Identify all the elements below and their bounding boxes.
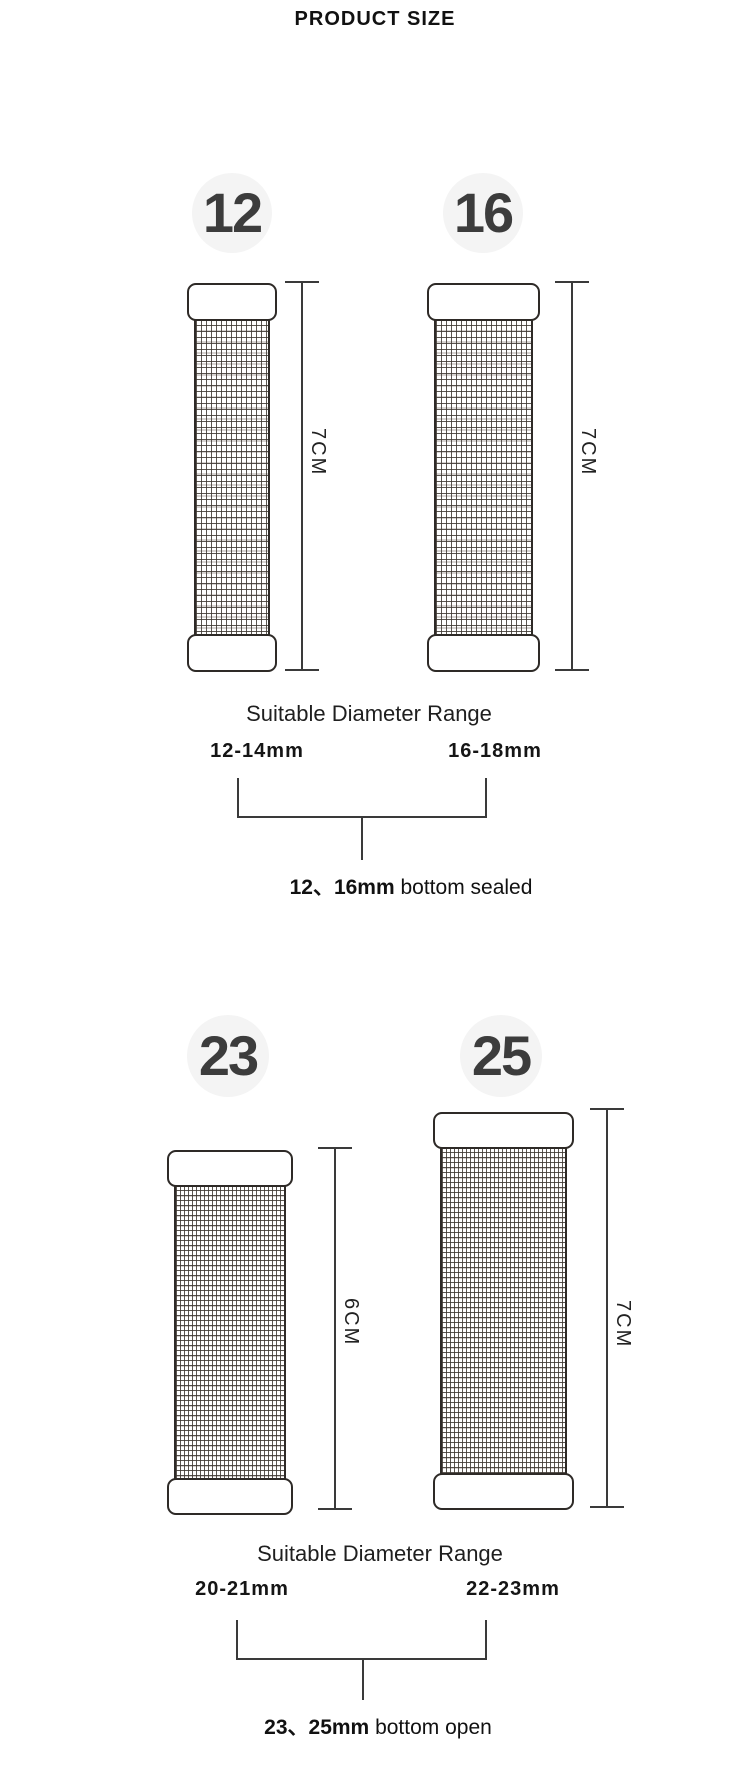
tube-mesh-body — [434, 319, 533, 636]
dimension-label-25: 7CM — [611, 1300, 634, 1348]
range-title-1: Suitable Diameter Range — [246, 701, 492, 727]
bracket-1 — [237, 778, 487, 818]
range-value-12: 12-14mm — [210, 740, 304, 763]
range-value-25: 22-23mm — [466, 1578, 560, 1601]
page-title: PRODUCT SIZE — [295, 8, 456, 31]
tube-cap-top — [427, 283, 540, 321]
dimension-label-16: 7CM — [576, 428, 599, 476]
tube-mesh-body — [194, 319, 270, 636]
note-sizes: 23、25mm — [264, 1716, 369, 1739]
tube-cap-bottom — [167, 1478, 293, 1515]
range-value-23: 20-21mm — [195, 1578, 289, 1601]
note-text: bottom sealed — [395, 876, 533, 899]
tube-cap-bottom — [427, 634, 540, 672]
size-badge-23: 23 — [187, 1015, 269, 1097]
bracket-stem-1 — [361, 818, 363, 860]
note-bottom-open: 23、25mm bottom open — [264, 1711, 492, 1741]
size-badge-16-label: 16 — [454, 185, 512, 241]
dimension-label-12: 7CM — [306, 428, 329, 476]
tube-cap-bottom — [433, 1473, 574, 1510]
tube-illustration-16 — [427, 283, 540, 672]
note-bottom-sealed: 12、16mm bottom sealed — [290, 871, 533, 901]
size-badge-25-label: 25 — [472, 1028, 530, 1084]
tube-illustration-25 — [433, 1112, 574, 1510]
size-badge-25: 25 — [460, 1015, 542, 1097]
dimension-line-25 — [606, 1108, 608, 1508]
note-sizes: 12、16mm — [290, 876, 395, 899]
tube-cap-top — [433, 1112, 574, 1149]
size-badge-12: 12 — [192, 173, 272, 253]
tube-cap-bottom — [187, 634, 277, 672]
size-badge-12-label: 12 — [203, 185, 261, 241]
bracket-stem-2 — [362, 1660, 364, 1700]
size-badge-23-label: 23 — [199, 1028, 257, 1084]
dimension-line-16 — [571, 281, 573, 671]
tube-cap-top — [187, 283, 277, 321]
dimension-label-23: 6CM — [339, 1298, 362, 1346]
tube-cap-top — [167, 1150, 293, 1187]
dimension-line-23 — [334, 1147, 336, 1510]
range-title-2: Suitable Diameter Range — [257, 1541, 503, 1567]
size-badge-16: 16 — [443, 173, 523, 253]
dimension-line-12 — [301, 281, 303, 671]
tube-illustration-12 — [187, 283, 277, 672]
tube-mesh-body — [174, 1185, 286, 1480]
range-value-16: 16-18mm — [448, 740, 542, 763]
tube-illustration-23 — [167, 1150, 293, 1515]
tube-mesh-body — [440, 1147, 567, 1475]
product-size-infographic: PRODUCT SIZE 12 16 7CM 7CM Suitable Diam… — [0, 0, 750, 1777]
bracket-2 — [236, 1620, 487, 1660]
note-text: bottom open — [369, 1716, 492, 1739]
